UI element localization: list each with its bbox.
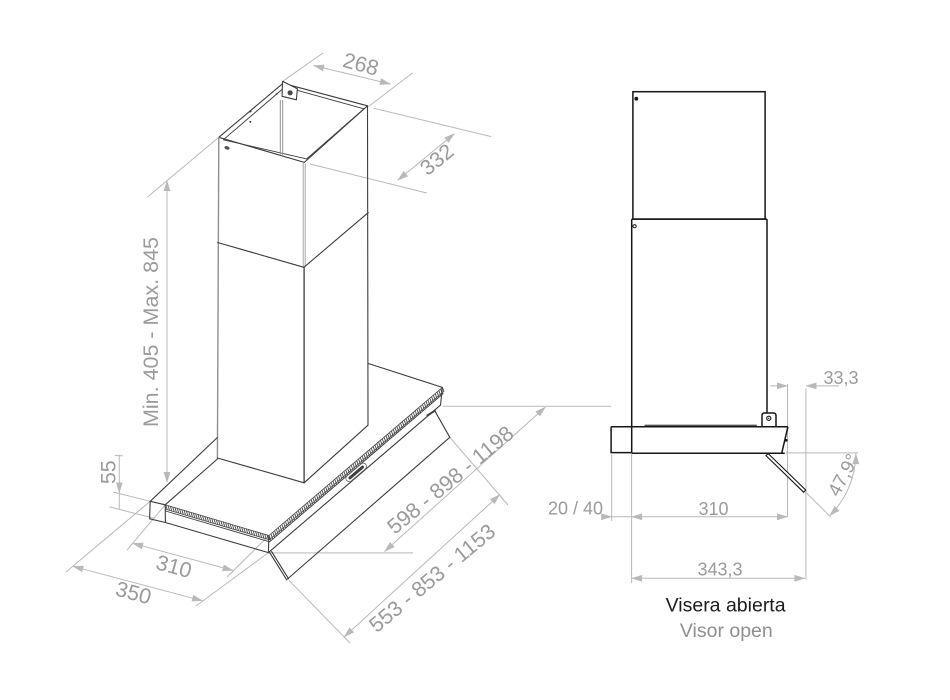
svg-text:33,3: 33,3: [823, 368, 858, 388]
svg-text:55: 55: [97, 460, 121, 484]
svg-text:47,9°: 47,9°: [824, 451, 863, 500]
svg-text:553 - 853 - 1153: 553 - 853 - 1153: [365, 519, 501, 637]
svg-text:332: 332: [416, 139, 459, 180]
svg-text:268: 268: [340, 48, 381, 80]
svg-text:Visera abierta: Visera abierta: [666, 595, 786, 617]
svg-text:310: 310: [698, 499, 728, 519]
svg-text:310: 310: [153, 550, 194, 583]
svg-text:350: 350: [113, 577, 154, 610]
svg-text:Visor open: Visor open: [680, 620, 773, 642]
svg-text:Min. 405 - Max. 845: Min. 405 - Max. 845: [139, 237, 163, 427]
svg-text:343,3: 343,3: [697, 560, 742, 580]
svg-text:20 / 40: 20 / 40: [548, 499, 603, 519]
